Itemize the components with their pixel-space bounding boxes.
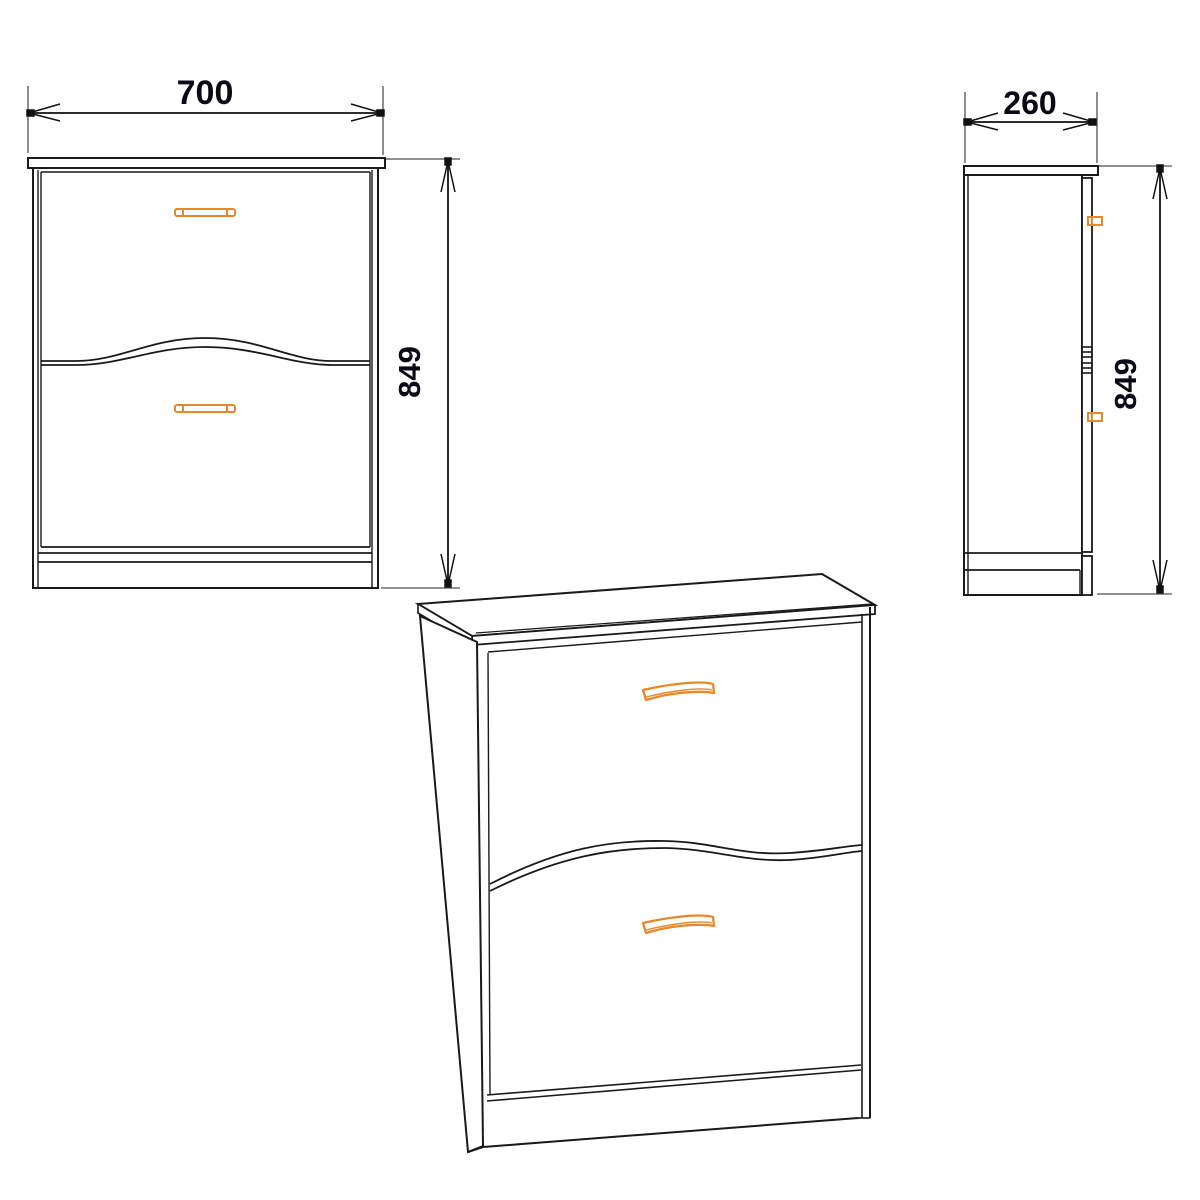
side-height-label: 849 (1108, 358, 1143, 410)
dimension-260: 260 (964, 85, 1097, 163)
front-view (28, 158, 385, 588)
front-upper-drawer-handle (175, 209, 235, 216)
persp-door-bottom-edge-2 (487, 1070, 861, 1101)
front-top-board (28, 158, 385, 168)
persp-lower-door-wave-edge (490, 848, 862, 891)
side-depth-label: 260 (1003, 85, 1056, 121)
front-width-label: 700 (177, 74, 234, 112)
technical-drawing-canvas: 700 849 (0, 0, 1200, 1200)
side-door-strip-bottom (1082, 556, 1092, 595)
front-carcass (33, 168, 378, 588)
side-panel (964, 175, 1082, 595)
side-upper-handle (1088, 217, 1102, 225)
dimension-849-side: 849 (1097, 165, 1172, 594)
dimension-849-front: 849 (381, 158, 460, 588)
perspective-view (418, 574, 875, 1152)
side-top-board (964, 166, 1098, 175)
side-door-strip (1082, 178, 1092, 552)
shoe-cabinet-drawing: 700 849 (0, 0, 1200, 1200)
side-view (964, 166, 1102, 595)
dimension-700: 700 (27, 74, 384, 155)
front-lower-drawer-handle (175, 405, 235, 412)
persp-upper-drawer-handle (643, 683, 714, 700)
persp-left-panel (420, 616, 483, 1152)
side-lower-handle (1088, 413, 1102, 421)
persp-upper-door-wave-edge (490, 841, 862, 884)
persp-door-bottom-edge-1 (487, 1065, 861, 1095)
persp-plinth-bottom-edge (483, 1118, 858, 1147)
front-height-label: 849 (392, 346, 427, 398)
persp-lower-drawer-handle (643, 916, 714, 933)
persp-door-left-edge (488, 653, 490, 1094)
